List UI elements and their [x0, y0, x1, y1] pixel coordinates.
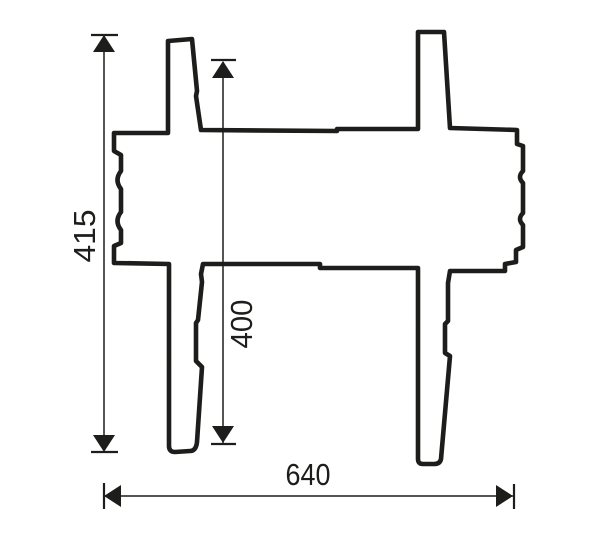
dimension-label-overall-height: 415	[67, 210, 102, 263]
arrow-right-icon	[496, 485, 513, 507]
bracket-dimension-drawing: 415 400 640	[0, 0, 600, 540]
arrow-left-icon	[104, 485, 121, 507]
dimension-label-inner-height: 400	[224, 300, 259, 349]
arrow-down-icon	[93, 435, 115, 452]
dimension-inner-height: 400	[211, 60, 259, 444]
arrow-up-icon	[93, 35, 115, 52]
dimension-overall-height: 415	[67, 35, 118, 452]
arrow-down-icon	[212, 426, 234, 443]
bracket-outline	[114, 32, 523, 464]
technical-drawing-canvas: 415 400 640	[0, 0, 600, 540]
dimension-label-overall-width: 640	[286, 457, 331, 492]
arrow-up-icon	[212, 61, 234, 78]
dimension-overall-width: 640	[104, 457, 514, 509]
